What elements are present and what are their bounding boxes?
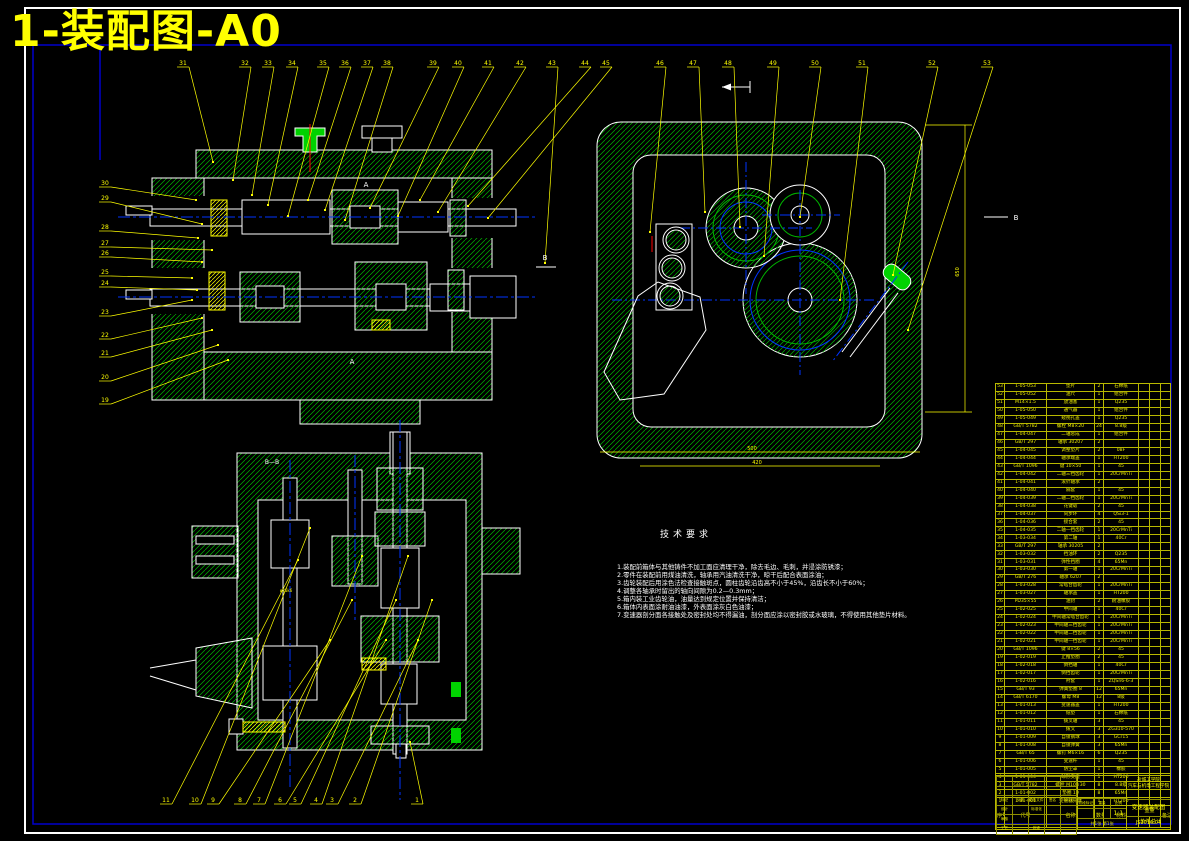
parts-table-row: 81-01-008自锁弹簧365Mn: [996, 742, 1171, 750]
parts-table-row: 7GB/T 65螺钉 M6×166Q235: [996, 750, 1171, 758]
part-number-label: 48: [724, 60, 732, 67]
parts-table-row: 221-02-022中间轴二挡齿轮120CrMnTi: [996, 631, 1171, 639]
parts-table-row: 251-02-025中间轴140Cr: [996, 607, 1171, 615]
title-block-cell: [1013, 805, 1029, 815]
part-number-label: 34: [288, 60, 296, 67]
part-number-label: 31: [179, 60, 187, 67]
part-number-label: 2: [353, 797, 357, 804]
title-block-cell: [1045, 824, 1061, 834]
parts-table-row: 321-03-032挡油环2Q235: [996, 551, 1171, 559]
title-block-cell: [1061, 786, 1077, 796]
part-number-label: 11: [162, 797, 170, 804]
parts-table-row: 131-01-013变速器盖1HT200: [996, 702, 1171, 710]
parts-table-row: 311-03-031弹性挡圈465Mn: [996, 559, 1171, 567]
part-number-label: 47: [689, 60, 697, 67]
parts-table-row: 301-03-030第一轴120CrMnTi: [996, 567, 1171, 575]
school-name-line2: 汽车与机电工程学院: [1127, 784, 1170, 790]
parts-table-row: 441-04-044轴承端盖1HT200: [996, 455, 1171, 463]
parts-table-row: 14GB/T 6170螺母 M8128级: [996, 694, 1171, 702]
parts-table-row: 43GB/T 1096键 10×50145: [996, 463, 1171, 471]
parts-table-row: 33GB/T 297轴承 302052: [996, 543, 1171, 551]
part-number-label: 3: [330, 797, 334, 804]
part-number-label: 27: [101, 240, 109, 247]
part-number-label: 44: [581, 60, 589, 67]
title-block-cell: 设计: [997, 805, 1013, 815]
parts-table-row: 521-05-052油尺1组合件: [996, 391, 1171, 399]
annotation-text: 500: [747, 446, 757, 452]
page-title: 1-装配图-A0: [10, 10, 282, 54]
part-number-label: 52: [928, 60, 936, 67]
drawing-code: JS2016.04: [1127, 817, 1170, 829]
title-block-cell: 年月日: [1061, 796, 1077, 806]
parts-table-row: 46GB/T 297轴承 302072: [996, 439, 1171, 447]
parts-table-row: 411-04-041滚针轴承2: [996, 479, 1171, 487]
part-number-label: 29: [101, 195, 109, 202]
parts-table-row: 391-04-039二轴二挡齿轮120CrMnTi: [996, 495, 1171, 503]
part-number-label: 33: [264, 60, 272, 67]
tech-requirement-line: 1.装配前箱体与其他铸件不加工面应清理干净，除去毛边、毛刺，并浸涂防锈漆；: [617, 564, 1009, 571]
annotation-text: B: [1014, 214, 1019, 222]
parts-table-row: 101-01-010拨叉3ZG310-570: [996, 726, 1171, 734]
top-view: [536, 81, 1008, 466]
parts-table-row: 191-02-019止推垫圈245: [996, 654, 1171, 662]
stage-label: 阶段标记: [1078, 799, 1094, 808]
tech-requirements-title: 技术要求: [660, 527, 712, 540]
view-arrow: [722, 81, 750, 93]
annotation-text: 420: [752, 460, 762, 466]
parts-table-row: 401-04-040隔套145: [996, 487, 1171, 495]
part-number-label: 41: [484, 60, 492, 67]
part-number-label: 36: [341, 60, 349, 67]
title-block-cell: [997, 777, 1013, 787]
title-block-cell: 标准化: [1029, 805, 1045, 815]
parts-table-row: 341-03-034第二轴140Cr: [996, 535, 1171, 543]
part-number-label: 9: [211, 797, 215, 804]
title-block-cell: 工艺: [997, 824, 1013, 834]
title-block-cell: 标记: [997, 796, 1013, 806]
annotation-text: B—B: [265, 459, 279, 466]
parts-table-row: 20GB/T 1096键 8×56245: [996, 646, 1171, 654]
part-number-label: 4: [314, 797, 318, 804]
part-number-label: 50: [811, 60, 819, 67]
parts-table-row: 171-02-017倒挡齿轮120CrMnTi: [996, 670, 1171, 678]
tech-requirement-line: 7.变速器剖分面各接触处及密封处均不得漏油，剖分面应涂以密封胶或水玻璃，不得使用…: [617, 612, 1009, 619]
scale-block: 阶段标记 重量 比例 1:1 共1张 第1张: [1078, 776, 1127, 829]
parts-table-row: 451-04-045调整垫片208F: [996, 447, 1171, 455]
annotation-text: φ25k6: [280, 588, 293, 593]
title-block-cell: [1045, 786, 1061, 796]
parts-table-row: 371-04-037同步环4QSi3-1: [996, 511, 1171, 519]
part-number-label: 35: [319, 60, 327, 67]
title-block-cell: [1013, 824, 1029, 834]
parts-table-row: 51-01-005防尘罩1橡胶: [996, 766, 1171, 774]
title-block-cell: [1045, 777, 1061, 787]
retainer-clip: [451, 728, 461, 743]
title-block-cell: [1061, 777, 1077, 787]
part-number-label: 30: [101, 180, 109, 187]
annotation-text: B: [543, 254, 548, 262]
parts-table-row: 181-02-018倒挡轴140Cr: [996, 662, 1171, 670]
title-block-cell: 批准: [1029, 824, 1045, 834]
part-number-label: 38: [383, 60, 391, 67]
bearing-highlight: [209, 272, 225, 310]
part-number-label: 24: [101, 280, 109, 287]
parts-table-row: 111-01-011拨叉轴345: [996, 718, 1171, 726]
part-number-label: 42: [516, 60, 524, 67]
tech-requirements-list: 1.装配前箱体与其他铸件不加工面应清理干净，除去毛边、毛刺，并浸涂防锈漆；2.零…: [617, 564, 1009, 620]
parts-table-row: 121-01-012纸垫1石棉纸: [996, 710, 1171, 718]
part-number-label: 46: [656, 60, 664, 67]
scale-value: 1:1: [1111, 809, 1126, 818]
title-block-cell: [1061, 805, 1077, 815]
part-number-label: 19: [101, 397, 109, 404]
part-number-label: 7: [257, 797, 261, 804]
parts-table-row: 91-01-009自锁钢球3GCr15: [996, 734, 1171, 742]
parts-table-row: 51M14×1.5放油塞1Q235: [996, 399, 1171, 407]
annotation-text: A: [364, 181, 369, 189]
annotation-text: A: [350, 358, 355, 366]
part-number-label: 22: [101, 332, 109, 339]
cad-drawing-page: 1-装配图-A0: [0, 0, 1189, 841]
drawing-info: 盐城工学院 汽车与机电工程学院 变速器装配图 JS2016.04: [1127, 776, 1170, 829]
part-number-label: 20: [101, 374, 109, 381]
title-block-cell: 审核: [997, 815, 1013, 825]
part-number-label: 28: [101, 224, 109, 231]
part-number-label: 51: [858, 60, 866, 67]
parts-table-row: 271-03-027轴承盖1HT200: [996, 591, 1171, 599]
side-section-view: [150, 420, 520, 800]
parts-table-row: 351-04-035二轴一挡齿轮120CrMnTi: [996, 527, 1171, 535]
title-block-cell: [1045, 815, 1061, 825]
title-block-cell: [1061, 824, 1077, 834]
title-block-cell: [1013, 777, 1029, 787]
parts-table-row: 211-02-021中间轴一挡齿轮120CrMnTi: [996, 639, 1171, 647]
part-number-label: 23: [101, 309, 109, 316]
parts-table-row: 531-05-053垫片2石棉纸: [996, 384, 1171, 392]
parts-table-row: 48GB/T 5782螺栓 M8×20248.8级: [996, 423, 1171, 431]
drawing-name: 变速器装配图: [1127, 800, 1170, 817]
title-block-cell: 处数: [1013, 796, 1029, 806]
part-number-label: 8: [238, 797, 242, 804]
weight-label: 重量: [1094, 799, 1110, 808]
title-block-cell: [1013, 786, 1029, 796]
part-number-label: 53: [983, 60, 991, 67]
title-block-cell: [997, 786, 1013, 796]
retainer-clip: [451, 682, 461, 697]
part-number-label: 49: [769, 60, 777, 67]
part-number-label: 40: [454, 60, 462, 67]
parts-table-row: 29GB/T 276轴承 62072: [996, 575, 1171, 583]
part-number-label: 10: [191, 797, 199, 804]
title-block-cell: 签名: [1045, 796, 1061, 806]
part-number-label: 26: [101, 250, 109, 257]
parts-table-row: 61-01-006变速杆145: [996, 758, 1171, 766]
front-section-view: [118, 124, 535, 424]
part-number-label: 45: [602, 60, 610, 67]
parts-table-row: 281-03-028常啮合齿轮120CrMnTi: [996, 583, 1171, 591]
part-number-label: 37: [363, 60, 371, 67]
parts-table-row: 26PD35×55油封2耐油橡胶: [996, 599, 1171, 607]
part-number-label: 5: [293, 797, 297, 804]
bearing-highlight: [211, 200, 227, 236]
parts-table-row: 501-05-050通气器1组合件: [996, 407, 1171, 415]
parts-table-row: 231-02-023中间轴三挡齿轮120CrMnTi: [996, 623, 1171, 631]
title-block-cell: [1029, 786, 1045, 796]
part-number-label: 6: [278, 797, 282, 804]
parts-table-row: 15GB/T 93弹簧垫圈 81265Mn: [996, 686, 1171, 694]
parts-table-row: 381-04-038花键毂245: [996, 503, 1171, 511]
title-block-cell: [1029, 815, 1045, 825]
part-number-label: 39: [429, 60, 437, 67]
title-block-cell: [1013, 815, 1029, 825]
parts-table-row: 471-04-047二轴总成1组合件: [996, 431, 1171, 439]
annotation-text: 650: [955, 267, 961, 277]
parts-table-row: 241-02-024中间轴常啮合齿轮120CrMnTi: [996, 615, 1171, 623]
parts-list-table: 531-05-053垫片2石棉纸521-05-052油尺1组合件51M14×1.…: [995, 383, 1171, 828]
title-block-cell: [1061, 815, 1077, 825]
parts-table-row: 421-04-042二轴三挡齿轮120CrMnTi: [996, 471, 1171, 479]
sheet-count: 共1张 第1张: [1078, 819, 1126, 829]
title-block-cell: [1045, 805, 1061, 815]
title-block: 标记处数更改文件号签名年月日设计标准化审核工艺批准 阶段标记 重量 比例 1:1…: [995, 775, 1171, 830]
parts-table-row: 491-05-049窥视孔盖1Q235: [996, 415, 1171, 423]
revision-grid: 标记处数更改文件号签名年月日设计标准化审核工艺批准: [996, 776, 1078, 829]
part-number-label: 21: [101, 350, 109, 357]
part-number-label: 25: [101, 269, 109, 276]
scale-label: 比例: [1111, 799, 1126, 808]
part-number-label: 32: [241, 60, 249, 67]
part-number-label: 1: [415, 797, 419, 804]
parts-table-row: 361-04-036接合套245: [996, 519, 1171, 527]
part-number-label: 43: [548, 60, 556, 67]
title-block-cell: [1029, 777, 1045, 787]
parts-table-row: 161-02-016衬套1ZQSn6-6-3: [996, 678, 1171, 686]
title-block-cell: 更改文件号: [1029, 796, 1045, 806]
